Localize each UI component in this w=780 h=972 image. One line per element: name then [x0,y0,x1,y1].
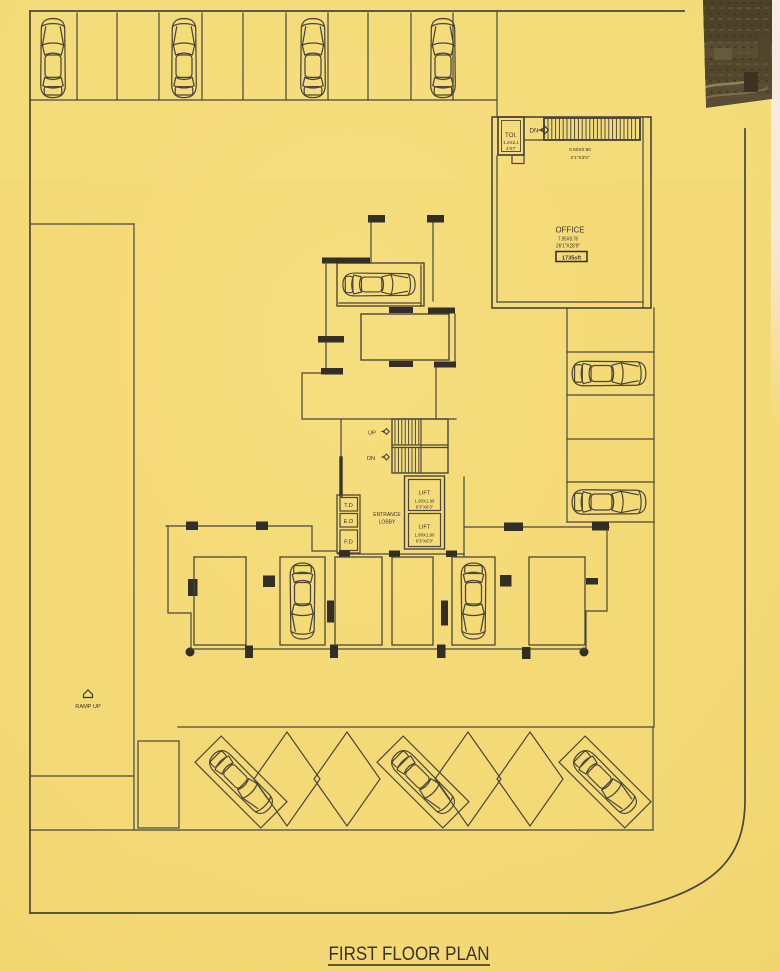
svg-text:LOBBY: LOBBY [379,520,396,526]
svg-text:1.90X1.90: 1.90X1.90 [414,533,435,538]
svg-text:DN: DN [530,129,539,135]
svg-text:TOI.: TOI. [505,132,517,139]
svg-text:1.2X2.1: 1.2X2.1 [503,140,519,145]
svg-text:1735sft: 1735sft [562,256,581,262]
svg-text:6'3"X6'3": 6'3"X6'3" [416,539,434,544]
svg-text:T.D: T.D [344,503,353,509]
svg-text:LIFT: LIFT [419,491,431,497]
svg-text:ENTRANCE: ENTRANCE [373,512,401,518]
svg-text:F.D: F.D [344,540,353,546]
svg-text:FIRST FLOOR PLAN: FIRST FLOOR PLAN [329,943,490,965]
svg-text:OFFICE: OFFICE [556,226,585,235]
svg-text:UP: UP [368,431,376,437]
svg-text:1.90X1.90: 1.90X1.90 [414,499,435,504]
svg-text:0.60X0.90: 0.60X0.90 [569,147,591,153]
svg-text:DN: DN [367,456,375,462]
svg-text:7.95X8.76: 7.95X8.76 [558,237,578,243]
svg-text:RAMP UP: RAMP UP [75,704,101,710]
svg-text:2'1"X3'0": 2'1"X3'0" [570,155,589,161]
svg-text:LIFT: LIFT [419,525,431,531]
svg-text:4'X7': 4'X7' [506,146,516,151]
svg-text:E.D: E.D [344,519,354,525]
svg-text:26'1"X28'9": 26'1"X28'9" [556,244,580,250]
svg-text:6'3"X6'3": 6'3"X6'3" [416,505,434,510]
